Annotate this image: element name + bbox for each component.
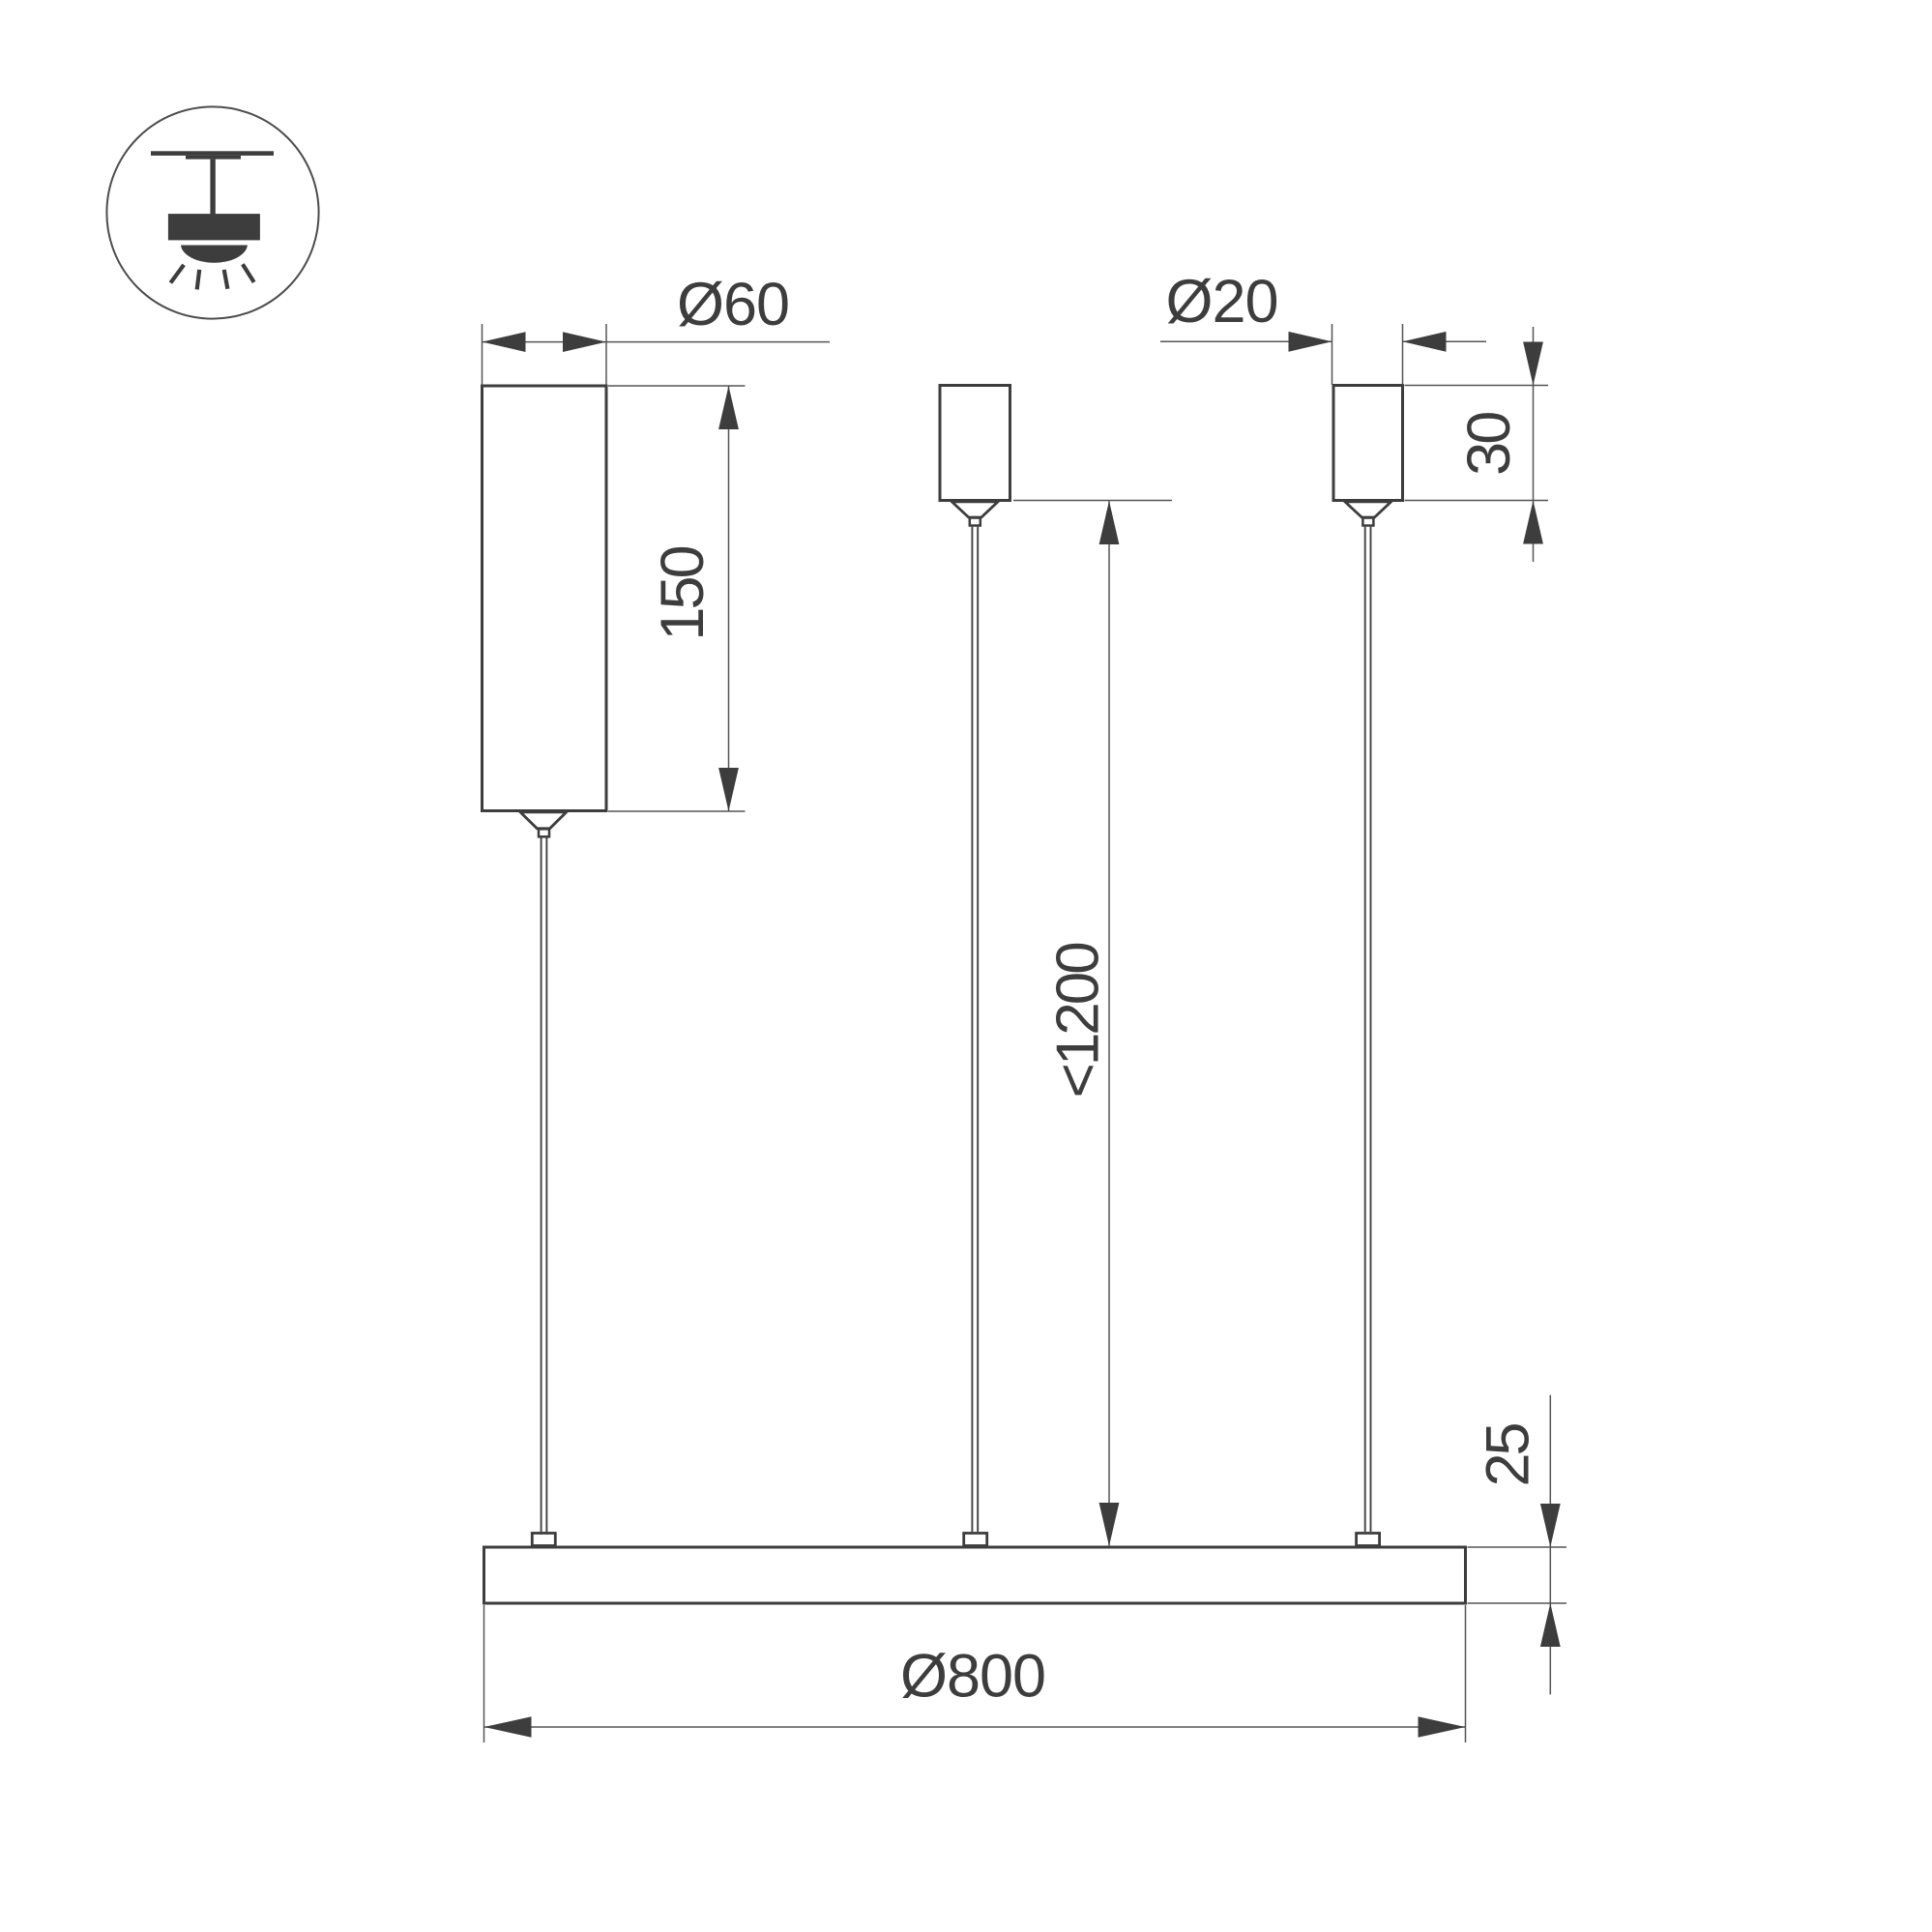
svg-text:Ø800: Ø800 (900, 1643, 1045, 1711)
svg-text:30: 30 (1455, 413, 1523, 476)
svg-text:150: 150 (649, 546, 717, 640)
svg-text:25: 25 (1475, 1424, 1542, 1487)
svg-text:Ø20: Ø20 (1165, 268, 1277, 336)
svg-text:<1200: <1200 (1045, 943, 1112, 1098)
svg-text:Ø60: Ø60 (677, 271, 789, 338)
